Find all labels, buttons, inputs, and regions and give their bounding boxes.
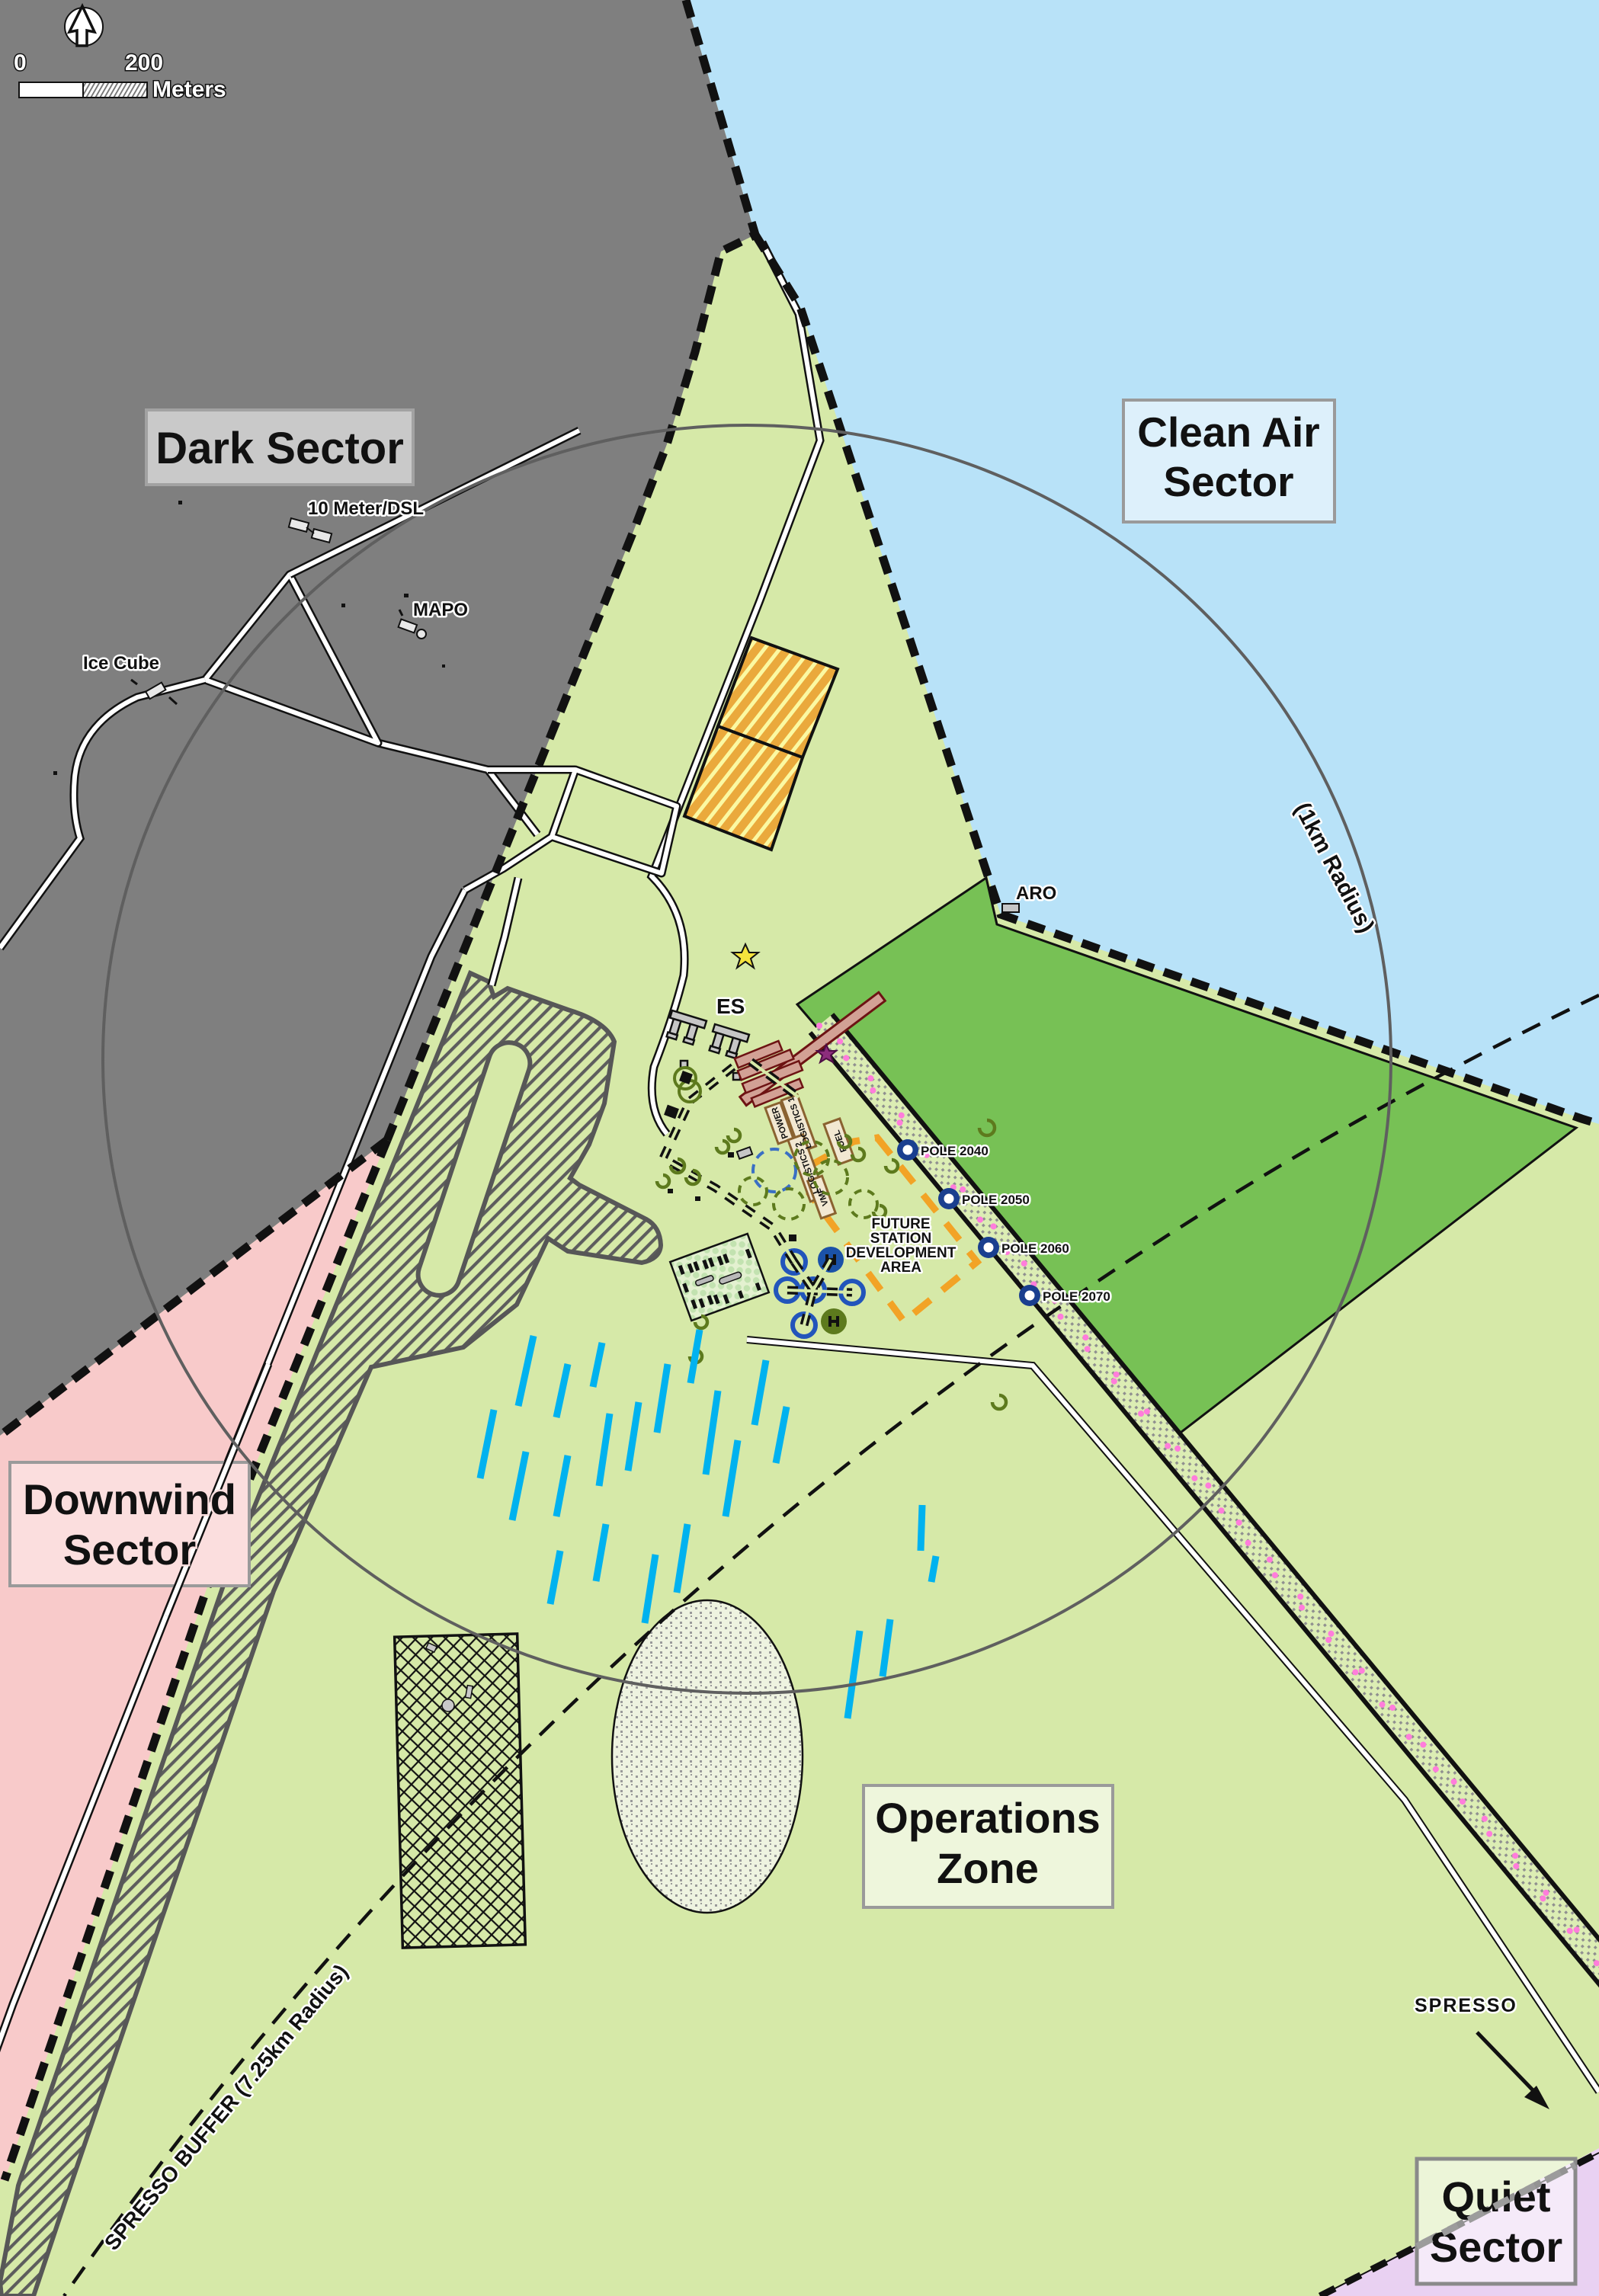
svg-text:Operations: Operations: [875, 1794, 1101, 1842]
svg-text:POLE 2050: POLE 2050: [962, 1193, 1030, 1207]
svg-text:200: 200: [125, 50, 163, 75]
svg-text:STATION: STATION: [870, 1231, 932, 1247]
svg-text:10 Meter/DSL: 10 Meter/DSL: [308, 498, 424, 519]
svg-text:Dark Sector: Dark Sector: [155, 424, 404, 473]
svg-text:AREA: AREA: [880, 1260, 921, 1276]
svg-text:Sector: Sector: [1163, 458, 1293, 505]
svg-text:MAPO: MAPO: [413, 600, 468, 620]
svg-text:POLE 2040: POLE 2040: [921, 1144, 989, 1158]
svg-text:FUTURE: FUTURE: [871, 1216, 930, 1232]
svg-text:DEVELOPMENT: DEVELOPMENT: [846, 1245, 957, 1261]
svg-text:Meters: Meters: [152, 77, 226, 102]
svg-text:ES: ES: [716, 994, 745, 1018]
svg-text:Zone: Zone: [937, 1844, 1039, 1892]
svg-text:Downwind: Downwind: [23, 1475, 236, 1523]
svg-text:0: 0: [14, 50, 27, 75]
svg-text:POLE 2070: POLE 2070: [1043, 1289, 1110, 1304]
svg-text:Clean Air: Clean Air: [1137, 408, 1319, 456]
svg-text:Sector: Sector: [63, 1526, 196, 1574]
svg-text:POLE 2060: POLE 2060: [1001, 1241, 1069, 1256]
svg-text:Quiet: Quiet: [1441, 2173, 1550, 2221]
svg-text:SPRESSO: SPRESSO: [1415, 1995, 1517, 2016]
svg-text:Ice Cube: Ice Cube: [83, 653, 159, 674]
svg-text:ARO: ARO: [1016, 883, 1056, 904]
